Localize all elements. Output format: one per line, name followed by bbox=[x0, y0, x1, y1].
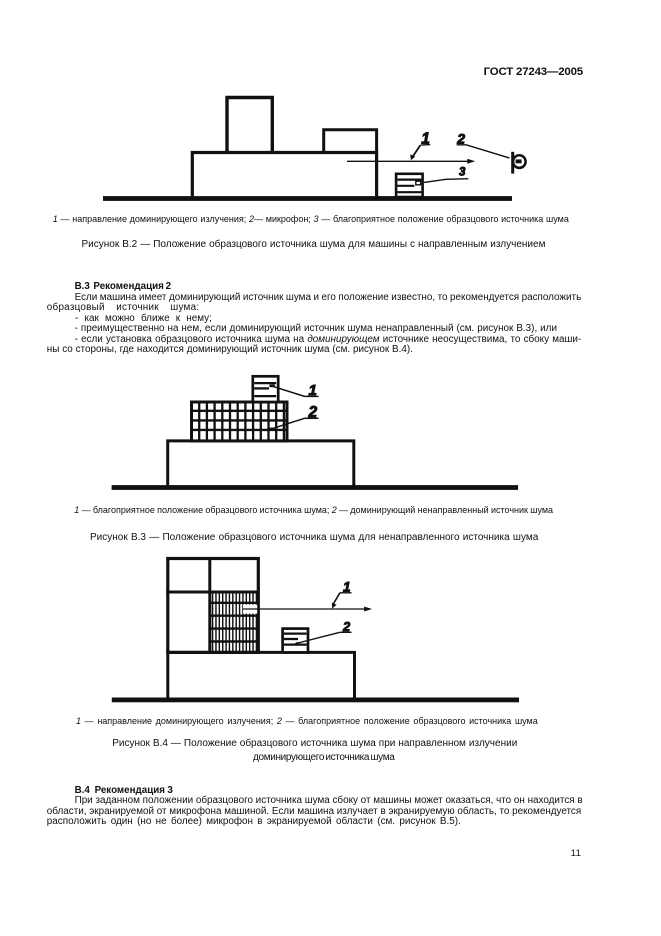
svg-text:2: 2 bbox=[342, 619, 351, 634]
svg-text:3: 3 bbox=[459, 166, 466, 178]
svg-text:1: 1 bbox=[309, 382, 317, 399]
svg-text:2: 2 bbox=[308, 404, 318, 421]
svg-text:1: 1 bbox=[343, 579, 351, 594]
svg-text:2: 2 bbox=[456, 131, 465, 147]
svg-text:1: 1 bbox=[421, 131, 430, 148]
